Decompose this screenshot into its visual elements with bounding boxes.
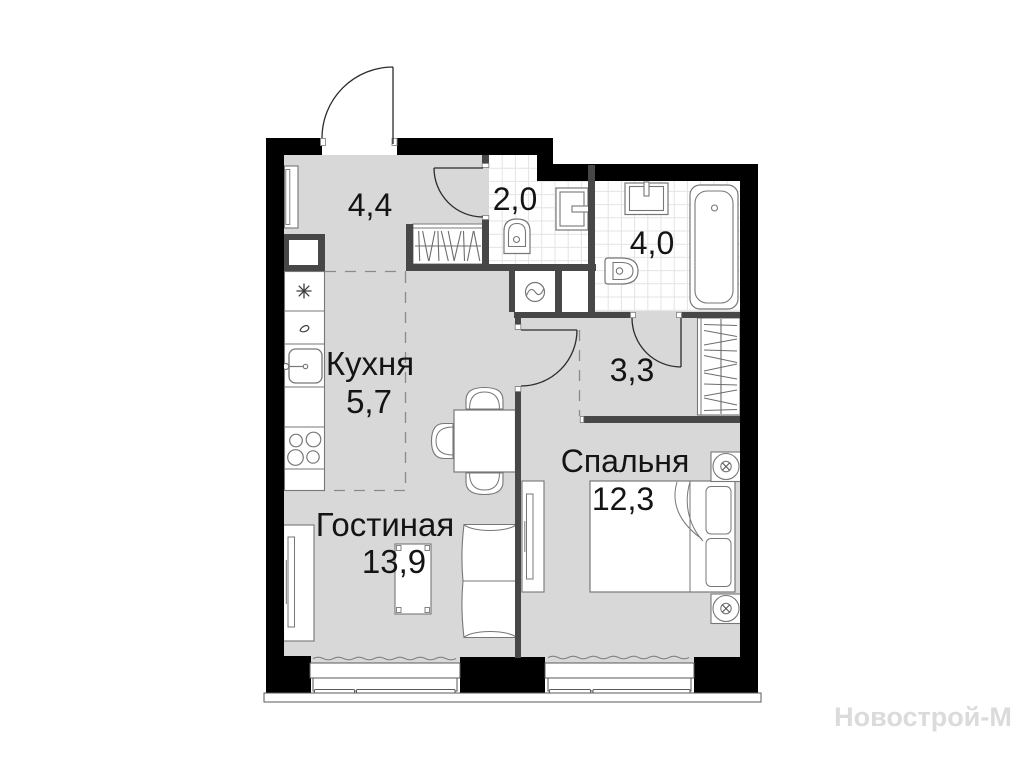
svg-text:Кухня: Кухня bbox=[326, 345, 414, 382]
svg-text:4,4: 4,4 bbox=[348, 187, 392, 223]
svg-text:3,3: 3,3 bbox=[610, 352, 654, 388]
svg-text:4,0: 4,0 bbox=[630, 225, 674, 261]
svg-text:5,7: 5,7 bbox=[346, 383, 392, 420]
svg-text:Спальня: Спальня bbox=[561, 443, 690, 479]
svg-text:Новострой-М: Новострой-М bbox=[834, 702, 1012, 732]
svg-text:12,3: 12,3 bbox=[592, 481, 654, 517]
svg-text:Гостиная: Гостиная bbox=[316, 506, 455, 543]
svg-text:2,0: 2,0 bbox=[493, 181, 537, 217]
svg-text:13,9: 13,9 bbox=[362, 543, 426, 580]
